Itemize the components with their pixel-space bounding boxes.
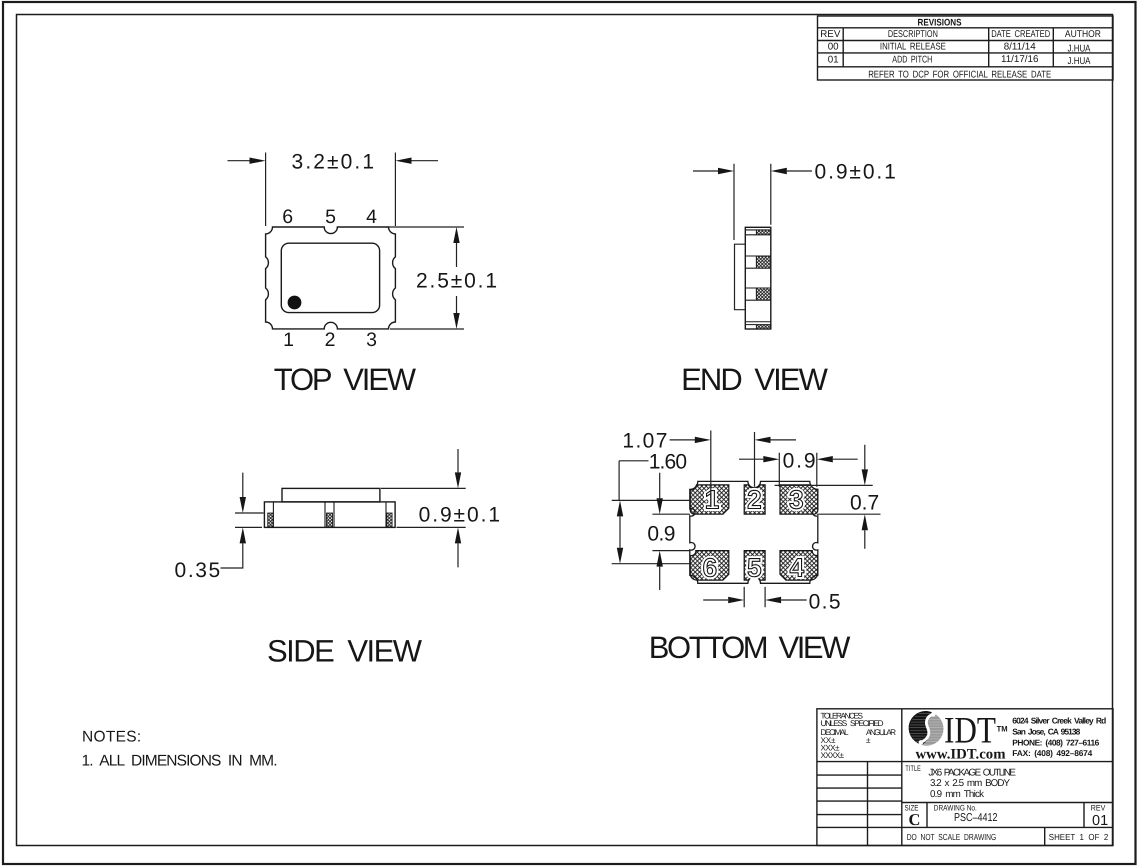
- svg-text:IDT: IDT: [944, 710, 996, 751]
- svg-text:00: 00: [828, 42, 839, 53]
- svg-text:J.HUA: J.HUA: [1068, 44, 1091, 55]
- svg-text:0.5: 0.5: [809, 591, 841, 614]
- svg-text:01: 01: [828, 54, 839, 65]
- svg-text:1.60: 1.60: [649, 450, 687, 473]
- svg-text:JX6 PACKAGE OUTLINE: JX6 PACKAGE OUTLINE: [928, 768, 1016, 779]
- svg-text:01: 01: [1092, 813, 1108, 829]
- svg-text:FAX: (408) 492–8674: FAX: (408) 492–8674: [1012, 748, 1092, 758]
- svg-text:8/11/14: 8/11/14: [1004, 41, 1037, 52]
- svg-text:REV: REV: [820, 29, 841, 40]
- svg-text:INITIAL RELEASE: INITIAL RELEASE: [880, 42, 946, 53]
- svg-text:www.IDT.com: www.IDT.com: [916, 747, 1006, 763]
- svg-text:2: 2: [747, 485, 761, 515]
- svg-text:DESCRIPTION: DESCRIPTION: [888, 29, 938, 40]
- svg-text:REVISIONS: REVISIONS: [918, 17, 963, 28]
- svg-text:6: 6: [282, 206, 293, 228]
- svg-text:1: 1: [283, 329, 294, 351]
- svg-text:J.HUA: J.HUA: [1068, 56, 1091, 67]
- svg-text:UNLESS SPECIFIED: UNLESS SPECIFIED: [821, 719, 884, 728]
- svg-text:0.9: 0.9: [647, 523, 675, 546]
- svg-text:NOTES:: NOTES:: [82, 729, 142, 746]
- svg-text:2.5±0.1: 2.5±0.1: [416, 270, 497, 293]
- svg-text:5: 5: [325, 206, 336, 228]
- svg-text:6024 Silver Creek Valley Rd: 6024 Silver Creek Valley Rd: [1012, 716, 1106, 726]
- svg-text:ANGULAR: ANGULAR: [866, 728, 896, 737]
- svg-text:PHONE: (408) 727–6116: PHONE: (408) 727–6116: [1012, 737, 1099, 747]
- svg-text:0.35: 0.35: [175, 559, 221, 582]
- svg-text:6: 6: [703, 552, 717, 582]
- svg-text:0.9±0.1: 0.9±0.1: [419, 503, 500, 526]
- svg-text:DATE CREATED: DATE CREATED: [991, 29, 1050, 40]
- svg-text:3: 3: [366, 329, 377, 351]
- svg-text:TOP VIEW: TOP VIEW: [274, 362, 417, 397]
- svg-text:0.9±0.1: 0.9±0.1: [815, 160, 896, 183]
- svg-text:4: 4: [790, 552, 805, 582]
- svg-text:3.2 x 2.5 mm BODY: 3.2 x 2.5 mm BODY: [930, 778, 1010, 789]
- svg-text:0.9: 0.9: [783, 450, 816, 473]
- svg-text:XXXX±: XXXX±: [821, 751, 845, 760]
- svg-text:2: 2: [325, 329, 336, 351]
- svg-text:TITLE: TITLE: [905, 764, 921, 773]
- svg-text:3.2±0.1: 3.2±0.1: [292, 150, 375, 173]
- svg-text:SHEET 1 OF 2: SHEET 1 OF 2: [1049, 832, 1109, 842]
- svg-text:±: ±: [866, 736, 871, 745]
- svg-text:San Jose, CA 95138: San Jose, CA 95138: [1012, 727, 1080, 737]
- svg-text:TM: TM: [997, 725, 1008, 734]
- svg-text:11/17/16: 11/17/16: [1001, 54, 1039, 65]
- svg-text:5: 5: [747, 552, 761, 582]
- svg-text:0.9 mm Thick: 0.9 mm Thick: [930, 789, 984, 800]
- svg-text:END VIEW: END VIEW: [681, 362, 828, 397]
- svg-text:AUTHOR: AUTHOR: [1065, 29, 1101, 40]
- svg-text:3: 3: [789, 485, 803, 515]
- svg-text:ADD PITCH: ADD PITCH: [892, 54, 932, 65]
- svg-text:1: 1: [705, 485, 719, 515]
- svg-text:REV: REV: [1091, 804, 1106, 813]
- svg-text:PSC–4412: PSC–4412: [954, 812, 998, 824]
- svg-text:SIDE VIEW: SIDE VIEW: [267, 634, 423, 669]
- svg-text:1.07: 1.07: [622, 429, 667, 452]
- svg-text:0.7: 0.7: [850, 492, 879, 515]
- svg-text:C: C: [909, 810, 921, 829]
- svg-text:1. ALL DIMENSIONS IN MM.: 1. ALL DIMENSIONS IN MM.: [82, 752, 278, 769]
- svg-text:DO NOT SCALE DRAWING: DO NOT SCALE DRAWING: [907, 832, 997, 842]
- svg-text:REFER TO DCP FOR OFFICIAL RELE: REFER TO DCP FOR OFFICIAL RELEASE DATE: [868, 69, 1051, 80]
- svg-text:BOTTOM VIEW: BOTTOM VIEW: [649, 630, 851, 665]
- svg-text:4: 4: [366, 206, 377, 228]
